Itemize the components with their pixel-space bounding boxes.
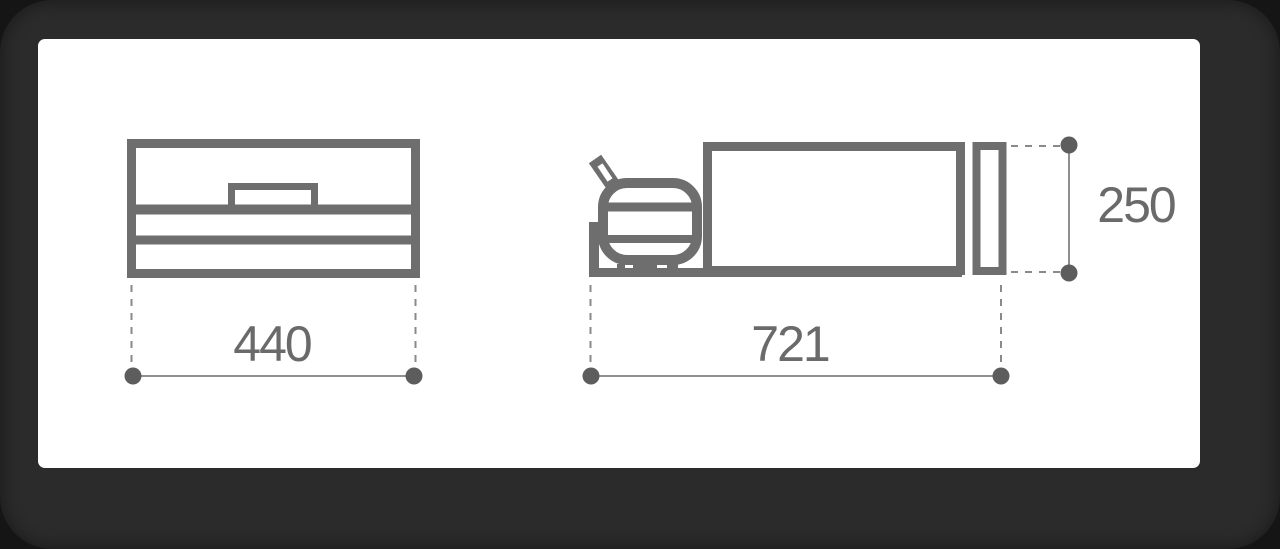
endpoint-dot	[583, 368, 600, 385]
endpoint-dot	[1061, 265, 1078, 282]
width-dimension-label: 440	[192, 319, 352, 369]
side-view	[589, 146, 1003, 277]
endpoint-dot	[1061, 137, 1078, 154]
endpoint-dot	[125, 368, 142, 385]
gas-cylinder-body	[603, 183, 697, 260]
height-dimension-label: 250	[1076, 180, 1196, 230]
side-door-panel	[977, 146, 1003, 271]
endpoint-dot	[406, 368, 423, 385]
depth-dimension-label: 721	[710, 319, 870, 369]
dimension-diagram	[0, 0, 1280, 549]
side-main-body	[708, 147, 961, 271]
endpoint-dot	[993, 368, 1010, 385]
front-view	[130, 144, 417, 274]
